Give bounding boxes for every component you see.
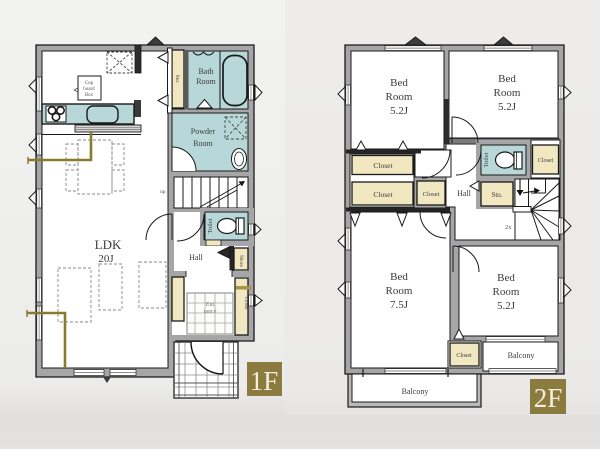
svg-text:Sto.: Sto.: [491, 191, 502, 199]
svg-text:5.2J: 5.2J: [497, 300, 516, 312]
svg-text:Sto.: Sto.: [174, 75, 180, 84]
svg-text:Closet: Closet: [373, 161, 393, 170]
svg-text:Shoes: Shoes: [238, 255, 243, 267]
svg-text:Bed: Bed: [497, 272, 515, 284]
svg-text:1F: 1F: [250, 366, 279, 396]
svg-text:Room: Room: [494, 87, 521, 99]
svg-text:Room: Room: [386, 91, 413, 103]
svg-text:LDK: LDK: [95, 237, 122, 252]
svg-text:Hall: Hall: [457, 189, 472, 198]
svg-text:Room: Room: [386, 285, 413, 297]
svg-text:Bed: Bed: [498, 73, 516, 85]
svg-text:board: board: [83, 87, 95, 92]
svg-text:Balcony: Balcony: [508, 351, 535, 360]
svg-text:Bath: Bath: [198, 67, 213, 76]
svg-text:Box: Box: [85, 93, 94, 98]
svg-text:Closet: Closet: [373, 190, 393, 199]
svg-text:2x: 2x: [505, 224, 512, 231]
svg-text:20J: 20J: [98, 253, 114, 265]
svg-text:Closet: Closet: [243, 297, 248, 310]
svg-text:5.2J: 5.2J: [390, 105, 409, 117]
svg-text:Room: Room: [493, 286, 520, 298]
svg-text:Closet: Closet: [423, 191, 440, 198]
svg-text:Bed: Bed: [390, 77, 408, 89]
svg-text:rance: rance: [204, 309, 217, 315]
svg-text:Bed: Bed: [390, 271, 408, 283]
svg-text:Closet: Closet: [538, 158, 554, 164]
svg-text:Powder: Powder: [191, 127, 216, 136]
svg-text:Closet: Closet: [456, 353, 472, 359]
svg-text:up: up: [160, 189, 166, 195]
svg-text:Toilet: Toilet: [207, 218, 214, 233]
svg-text:Ent: Ent: [206, 302, 215, 308]
svg-text:Balcony: Balcony: [402, 387, 429, 396]
svg-text:Room: Room: [196, 77, 216, 86]
svg-text:7.5J: 7.5J: [390, 299, 409, 311]
svg-text:2F: 2F: [534, 383, 563, 413]
svg-text:Cup: Cup: [85, 81, 94, 86]
svg-text:Toilet: Toilet: [483, 152, 490, 167]
svg-text:5.2J: 5.2J: [498, 101, 517, 113]
svg-text:Room: Room: [193, 139, 213, 148]
svg-text:Hall: Hall: [189, 253, 204, 262]
